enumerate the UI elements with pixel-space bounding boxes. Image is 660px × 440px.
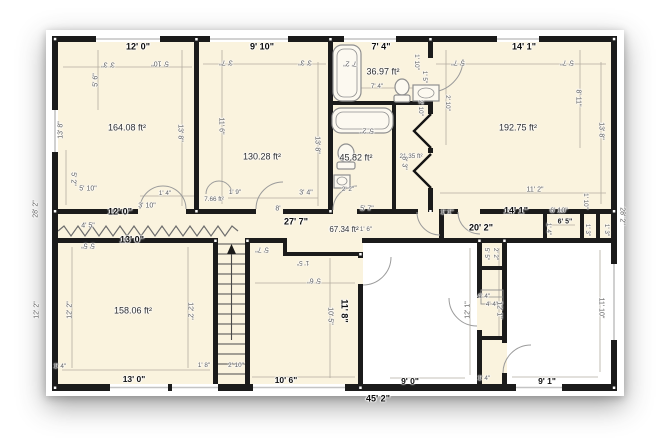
dim-small-11: 13' 8" <box>314 136 321 153</box>
dim-small-44: 1' 4" <box>54 364 66 370</box>
dim-small-39: 4' 5" <box>81 223 95 230</box>
dim-small-50: 5' 5" <box>483 248 489 260</box>
dim-small-48: 10' 5" <box>327 307 334 324</box>
floor-plan-viewer: 164.08 ft² 130.28 ft² 36.97 ft² 45.82 ft… <box>0 0 660 440</box>
dim-small-29: 6' 5" <box>558 219 573 226</box>
dim-bottom-room-g: 13' 0" <box>123 375 146 384</box>
dim-top-room-b: 9' 10" <box>250 43 274 52</box>
area-label-room-bottom-left: 158.06 ft² <box>114 307 152 316</box>
dim-mid-room-a: 12' 0" <box>108 208 132 217</box>
dim-small-20: 2' 10" <box>417 100 423 116</box>
dim-corridor-length: 20' 2" <box>469 224 493 233</box>
area-label-hallway: 67.34 ft² <box>329 226 358 234</box>
dim-small-12: 7' 2" <box>343 60 357 67</box>
dim-small-13: 7' 4" <box>371 84 383 90</box>
dim-top-bath: 7' 4" <box>372 43 391 52</box>
dim-small-42: 12' 2" <box>67 301 74 318</box>
dim-mid-room-f: 14' 1" <box>504 207 528 216</box>
dim-small-01: 3' 3" <box>101 61 115 68</box>
dim-top-room-f: 14' 1" <box>512 43 536 52</box>
area-label-room-top-left: 164.08 ft² <box>108 124 146 133</box>
dim-small-47: 5' 6" <box>307 277 321 284</box>
dim-room-h-right: 11' 8" <box>340 299 349 322</box>
dim-small-58: 1' 6" <box>360 227 372 233</box>
dim-small-52: 4' 4" <box>478 294 490 300</box>
sink-icon <box>413 85 439 101</box>
dim-small-07: 5' 2" <box>70 172 77 186</box>
dim-small-49: 1' 5" <box>297 259 309 265</box>
dim-small-38: 5' 7" <box>255 246 269 253</box>
dim-bottom-white-left: 9' 0" <box>401 377 419 386</box>
dim-small-36: 3' 4" <box>299 190 313 197</box>
dim-small-15: 1' 5" <box>421 71 427 83</box>
dim-small-05: 13' 8" <box>58 121 65 138</box>
dim-small-31: 1' 3" <box>603 224 609 236</box>
unmeasured-area-left <box>363 243 477 385</box>
dim-small-30: 1' 3" <box>584 224 590 236</box>
dim-small-09: 3' 3" <box>298 59 312 66</box>
dim-small-14: 1' 10" <box>413 54 419 70</box>
dim-small-43: 12' 2" <box>187 302 194 319</box>
dim-bottom-room-h: 10' 6" <box>275 376 298 385</box>
dim-small-45: 1' 8" <box>198 363 210 369</box>
dim-small-32: 1' 4" <box>545 223 551 235</box>
dim-small-41: 12' 2" <box>34 301 41 318</box>
dim-small-02: 5' 10" <box>151 60 168 67</box>
dim-small-35: 1' 9" <box>229 190 241 196</box>
dim-hall-length: 27' 7" <box>284 218 308 227</box>
dim-small-26: 11' 2" <box>527 187 544 194</box>
dim-small-21: 5' 7" <box>451 59 465 66</box>
dim-small-57: 11' 10" <box>598 298 605 319</box>
dim-small-37: 8' <box>275 206 280 213</box>
dim-small-55: 12' 1" <box>465 301 472 318</box>
dim-overall-height-right: 28' 2" <box>619 207 626 224</box>
dim-small-46: 2' 10" <box>228 363 244 369</box>
area-label-room-top-right: 192.75 ft² <box>499 124 537 133</box>
unmeasured-area-right <box>507 243 611 385</box>
dim-mid-room-g: 13' 0" <box>120 236 144 245</box>
dim-small-34: 3' 10" <box>138 203 155 210</box>
area-label-room-top-middle: 130.28 ft² <box>243 153 281 162</box>
dim-small-40: 5' 5" <box>81 242 95 249</box>
dim-small-22: 5' 7" <box>560 59 574 66</box>
dim-small-59: 1' 1" <box>441 210 453 216</box>
dim-small-18: 5' 7" <box>360 206 374 213</box>
dim-small-24: 13' 8" <box>598 122 605 139</box>
dim-small-03: 5' 6" <box>93 73 100 87</box>
dim-small-06: 5' 10" <box>79 186 96 193</box>
dim-small-04: 13' 8" <box>177 124 184 141</box>
dim-top-room-a: 12' 0" <box>126 43 150 52</box>
dim-small-10: 11' 6" <box>218 118 225 135</box>
dim-small-23: 8' 11" <box>575 90 582 107</box>
area-label-bathroom-top: 36.97 ft² <box>366 68 399 77</box>
dim-small-08: 3' 7" <box>219 59 233 66</box>
dim-small-51: 2' 2" <box>492 248 498 260</box>
dim-small-33: 1' 4" <box>159 191 171 197</box>
dim-small-27: 1' 10" <box>582 193 588 209</box>
area-label-hall-closet: 7.66 ft² <box>204 197 224 203</box>
dim-small-16: 5' 2" <box>360 127 374 134</box>
dim-small-54: 1' 4" <box>478 376 490 382</box>
dim-small-19: 8' 3" <box>401 156 408 170</box>
toilet-icon <box>395 79 409 95</box>
dim-bottom-white-right: 9' 1" <box>538 377 556 386</box>
dim-small-28: 6' 10" <box>550 208 567 215</box>
dim-overall-width: 45' 2" <box>366 395 390 404</box>
dim-small-56: 12' 1" <box>496 301 503 318</box>
area-label-bathroom-middle: 45.82 ft² <box>339 154 372 163</box>
dim-overall-height-left: 28' 2" <box>33 200 40 217</box>
dim-small-25: 2' 10" <box>444 95 450 111</box>
dim-small-17: 2' 2" <box>342 187 354 193</box>
